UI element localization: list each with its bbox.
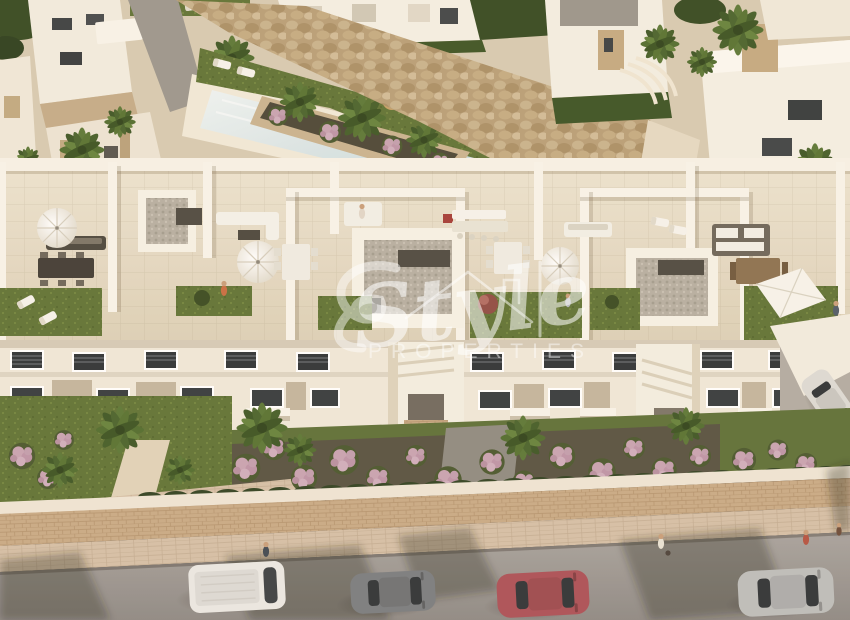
render-image: Style PROPERTIES <box>0 0 850 620</box>
aerial-render-canvas: Style PROPERTIES <box>0 0 850 620</box>
watermark-caps-text: PROPERTIES <box>368 340 593 363</box>
